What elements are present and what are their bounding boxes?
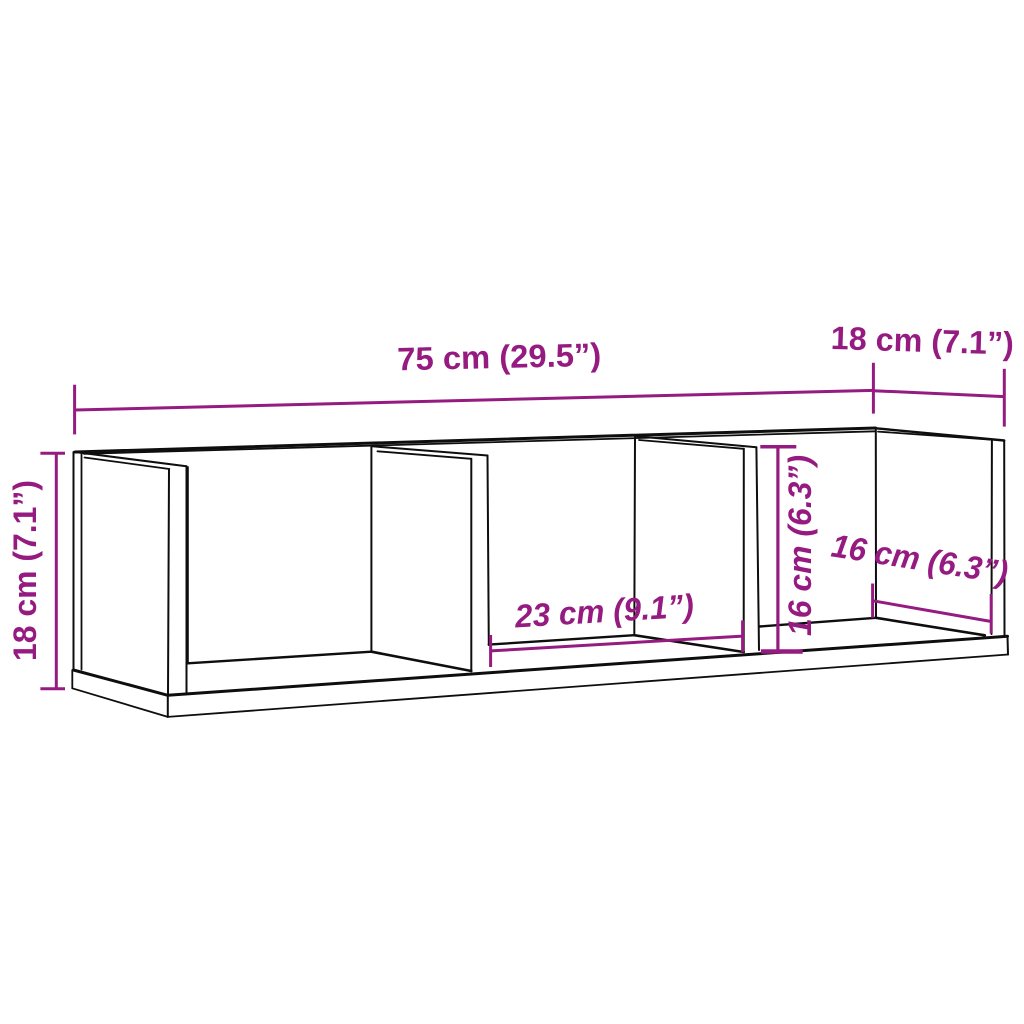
svg-text:18 cm (7.1”): 18 cm (7.1”) xyxy=(830,320,1014,362)
svg-text:16 cm (6.3”): 16 cm (6.3”) xyxy=(782,455,818,636)
svg-text:18 cm (7.1”): 18 cm (7.1”) xyxy=(7,480,43,661)
svg-text:75 cm (29.5”): 75 cm (29.5”) xyxy=(397,337,602,378)
